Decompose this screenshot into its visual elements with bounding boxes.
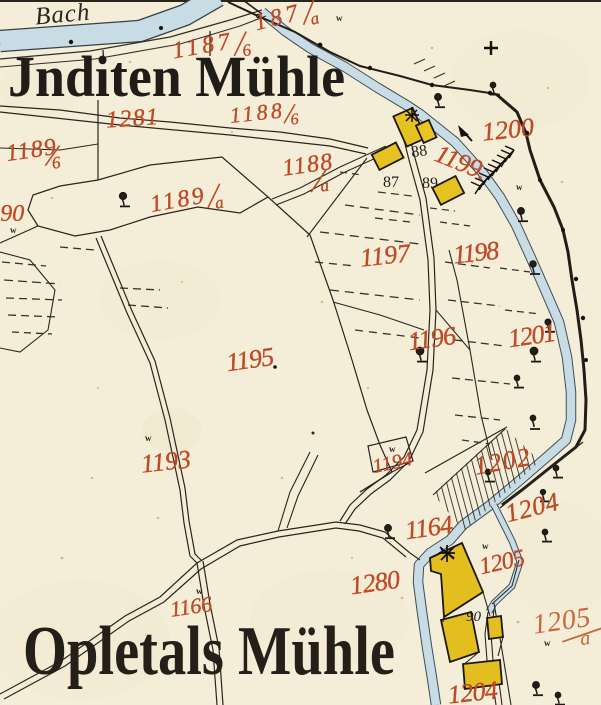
svg-text:90: 90 [466,609,482,625]
svg-text:Opletals Mühle: Opletals Mühle [23,613,395,690]
svg-text:87: 87 [383,174,399,191]
svg-text:88: 88 [410,142,428,161]
svg-text:w: w [482,541,489,551]
svg-text:1281: 1281 [105,104,159,134]
svg-text:1204: 1204 [446,675,499,705]
svg-text:1200: 1200 [481,112,536,146]
svg-text:1198: 1198 [452,236,501,270]
svg-text:1190: 1190 [0,201,24,227]
svg-text:89: 89 [422,175,438,192]
svg-text:1197: 1197 [359,238,413,272]
svg-text:w: w [544,638,551,648]
svg-text:w: w [145,433,152,443]
svg-text:w: w [336,13,343,23]
svg-text:Bach: Bach [34,0,92,30]
svg-text:w: w [516,182,523,192]
svg-text:1193: 1193 [140,444,193,478]
